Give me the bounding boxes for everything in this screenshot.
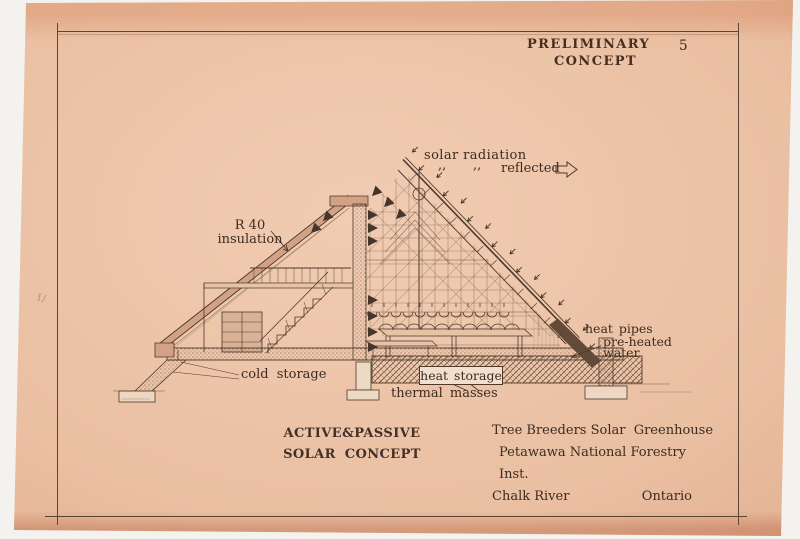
- label-thermal-masses: thermal masses: [391, 387, 498, 401]
- cold-storage-leaders: [173, 362, 239, 379]
- center-footing-base: [347, 390, 379, 400]
- greenhouse-truss-lattice: [228, 168, 710, 340]
- railing-balusters: [254, 268, 342, 283]
- label-cold-storage: cold storage: [241, 368, 326, 382]
- label-water: water: [603, 346, 640, 359]
- stamp-concept: CONCEPT: [527, 55, 637, 69]
- caption-project-name: Tree Breeders Solar Greenhouse: [492, 420, 692, 442]
- label-r40: R 40: [218, 219, 282, 233]
- caption-province: Ontario: [642, 486, 692, 508]
- project-caption: Tree Breeders Solar Greenhouse Petawawa …: [492, 420, 692, 508]
- right-footing-pad: [585, 386, 627, 399]
- heat-storage-text: heat storage: [420, 368, 502, 383]
- ditto-mark-2: ,,: [473, 159, 481, 173]
- long-bench: [379, 329, 532, 336]
- left-footing-pad: [119, 391, 155, 402]
- staircase: [268, 299, 322, 353]
- concept-title: ACTIVE&PASSIVE SOLAR CONCEPT: [278, 423, 426, 465]
- label-reflected: reflected: [501, 162, 560, 176]
- concept-title-line2: SOLAR CONCEPT: [278, 444, 426, 465]
- scanned-drawing-page: PRELIMINARY CONCEPT 5 solar radiation ,,…: [0, 0, 800, 539]
- mezzanine-floor: [204, 283, 353, 288]
- solar-radiation-arrows: [412, 147, 595, 349]
- front-bench: [366, 341, 437, 346]
- eave-block: [155, 343, 174, 357]
- page-number: 5: [679, 39, 688, 53]
- ditto-mark-1: ,,: [438, 159, 446, 173]
- left-footing-strut: [133, 360, 186, 393]
- shelf-cabinet: [222, 312, 262, 352]
- caption-location: Chalk River: [492, 486, 569, 508]
- margin-pencil-mark: 1/: [35, 292, 47, 305]
- label-heat-storage: heat storage: [419, 366, 503, 385]
- label-insulation: insulation: [200, 233, 300, 247]
- concept-title-line1: ACTIVE&PASSIVE: [278, 423, 426, 444]
- center-footing-stem: [356, 362, 371, 390]
- caption-institute: Petawawa National Forestry Inst.: [492, 442, 692, 486]
- stamp-preliminary: PRELIMINARY: [527, 38, 637, 52]
- center-spine-wall: [353, 204, 366, 360]
